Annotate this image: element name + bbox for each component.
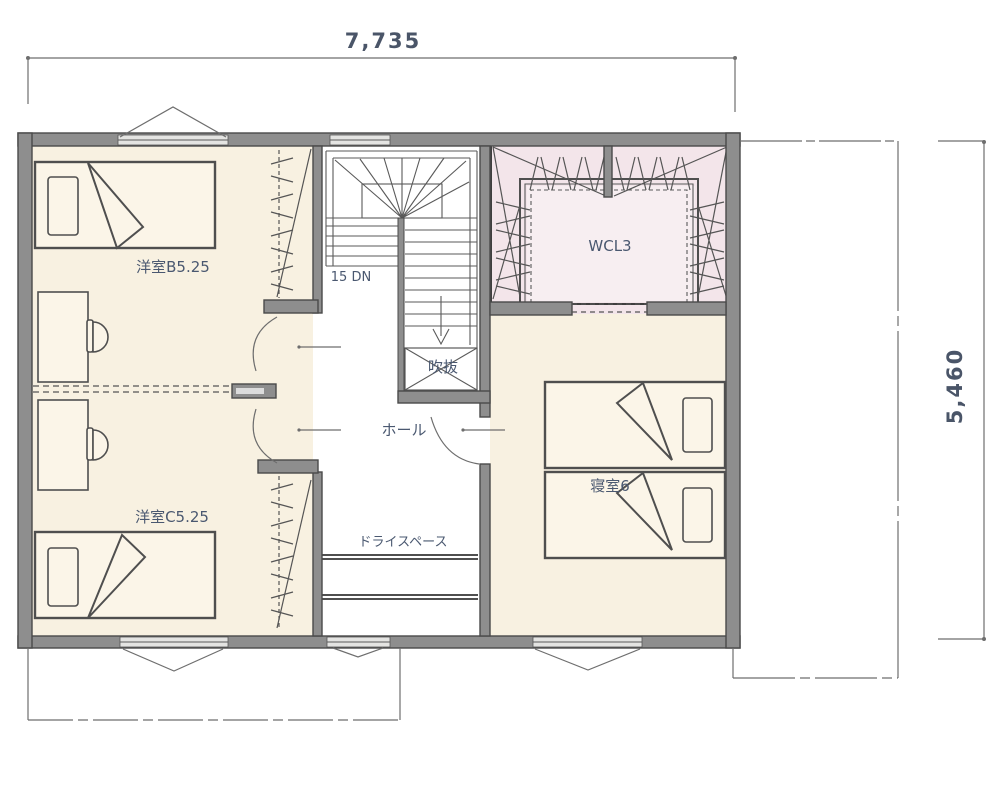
floor-plan-page: 7,735 5,460 洋室B5.25 洋室C5.25 WCL3 寝室6 ホール… <box>0 0 1000 805</box>
label-stair-note: 15 DN <box>331 270 371 285</box>
wall-hall-west-upper <box>313 146 322 313</box>
pillow-room-b <box>48 177 78 235</box>
desk-room-c <box>38 400 88 490</box>
pillow-bed-1 <box>683 398 712 452</box>
label-hall: ホール <box>381 421 426 439</box>
label-wcl: WCL3 <box>588 237 631 255</box>
chair-back-room-c <box>87 428 93 460</box>
wall-left <box>18 133 32 648</box>
desk-room-b <box>38 292 88 382</box>
label-bedroom: 寝室6 <box>590 477 630 495</box>
wall-wcl-divider <box>604 146 612 197</box>
wall-partition-stub-core <box>236 388 264 394</box>
dimension-right: 5,460 <box>938 140 986 641</box>
wall-right <box>726 133 740 648</box>
wall-east-of-hall-upper <box>480 146 490 417</box>
stair-center-wall <box>398 218 404 393</box>
floor-plan-drawing: 7,735 5,460 洋室B5.25 洋室C5.25 WCL3 寝室6 ホール… <box>0 0 1000 805</box>
wall-east-of-hall-lower <box>480 464 490 636</box>
dimension-top-label: 7,735 <box>345 29 421 53</box>
wall-void-south <box>398 391 490 403</box>
label-room-c: 洋室C5.25 <box>135 508 209 526</box>
wall-hall-west-lower <box>313 472 322 636</box>
wall-closet-c-top <box>258 460 318 473</box>
pillow-room-c <box>48 548 78 606</box>
pillow-bed-2 <box>683 488 712 542</box>
label-void: 吹抜 <box>428 358 458 376</box>
wall-wcl-south-right <box>647 302 726 315</box>
balcony-outline <box>733 141 898 678</box>
lower-roof-outline <box>28 648 400 720</box>
label-dry-space: ドライスペース <box>358 535 447 550</box>
dimension-top: 7,735 <box>26 29 737 112</box>
wall-closet-b-bottom <box>264 300 318 313</box>
chair-back-room-b <box>87 320 93 352</box>
dimension-right-label: 5,460 <box>943 348 967 424</box>
label-room-b: 洋室B5.25 <box>136 258 210 276</box>
wall-wcl-south-left <box>490 302 572 315</box>
